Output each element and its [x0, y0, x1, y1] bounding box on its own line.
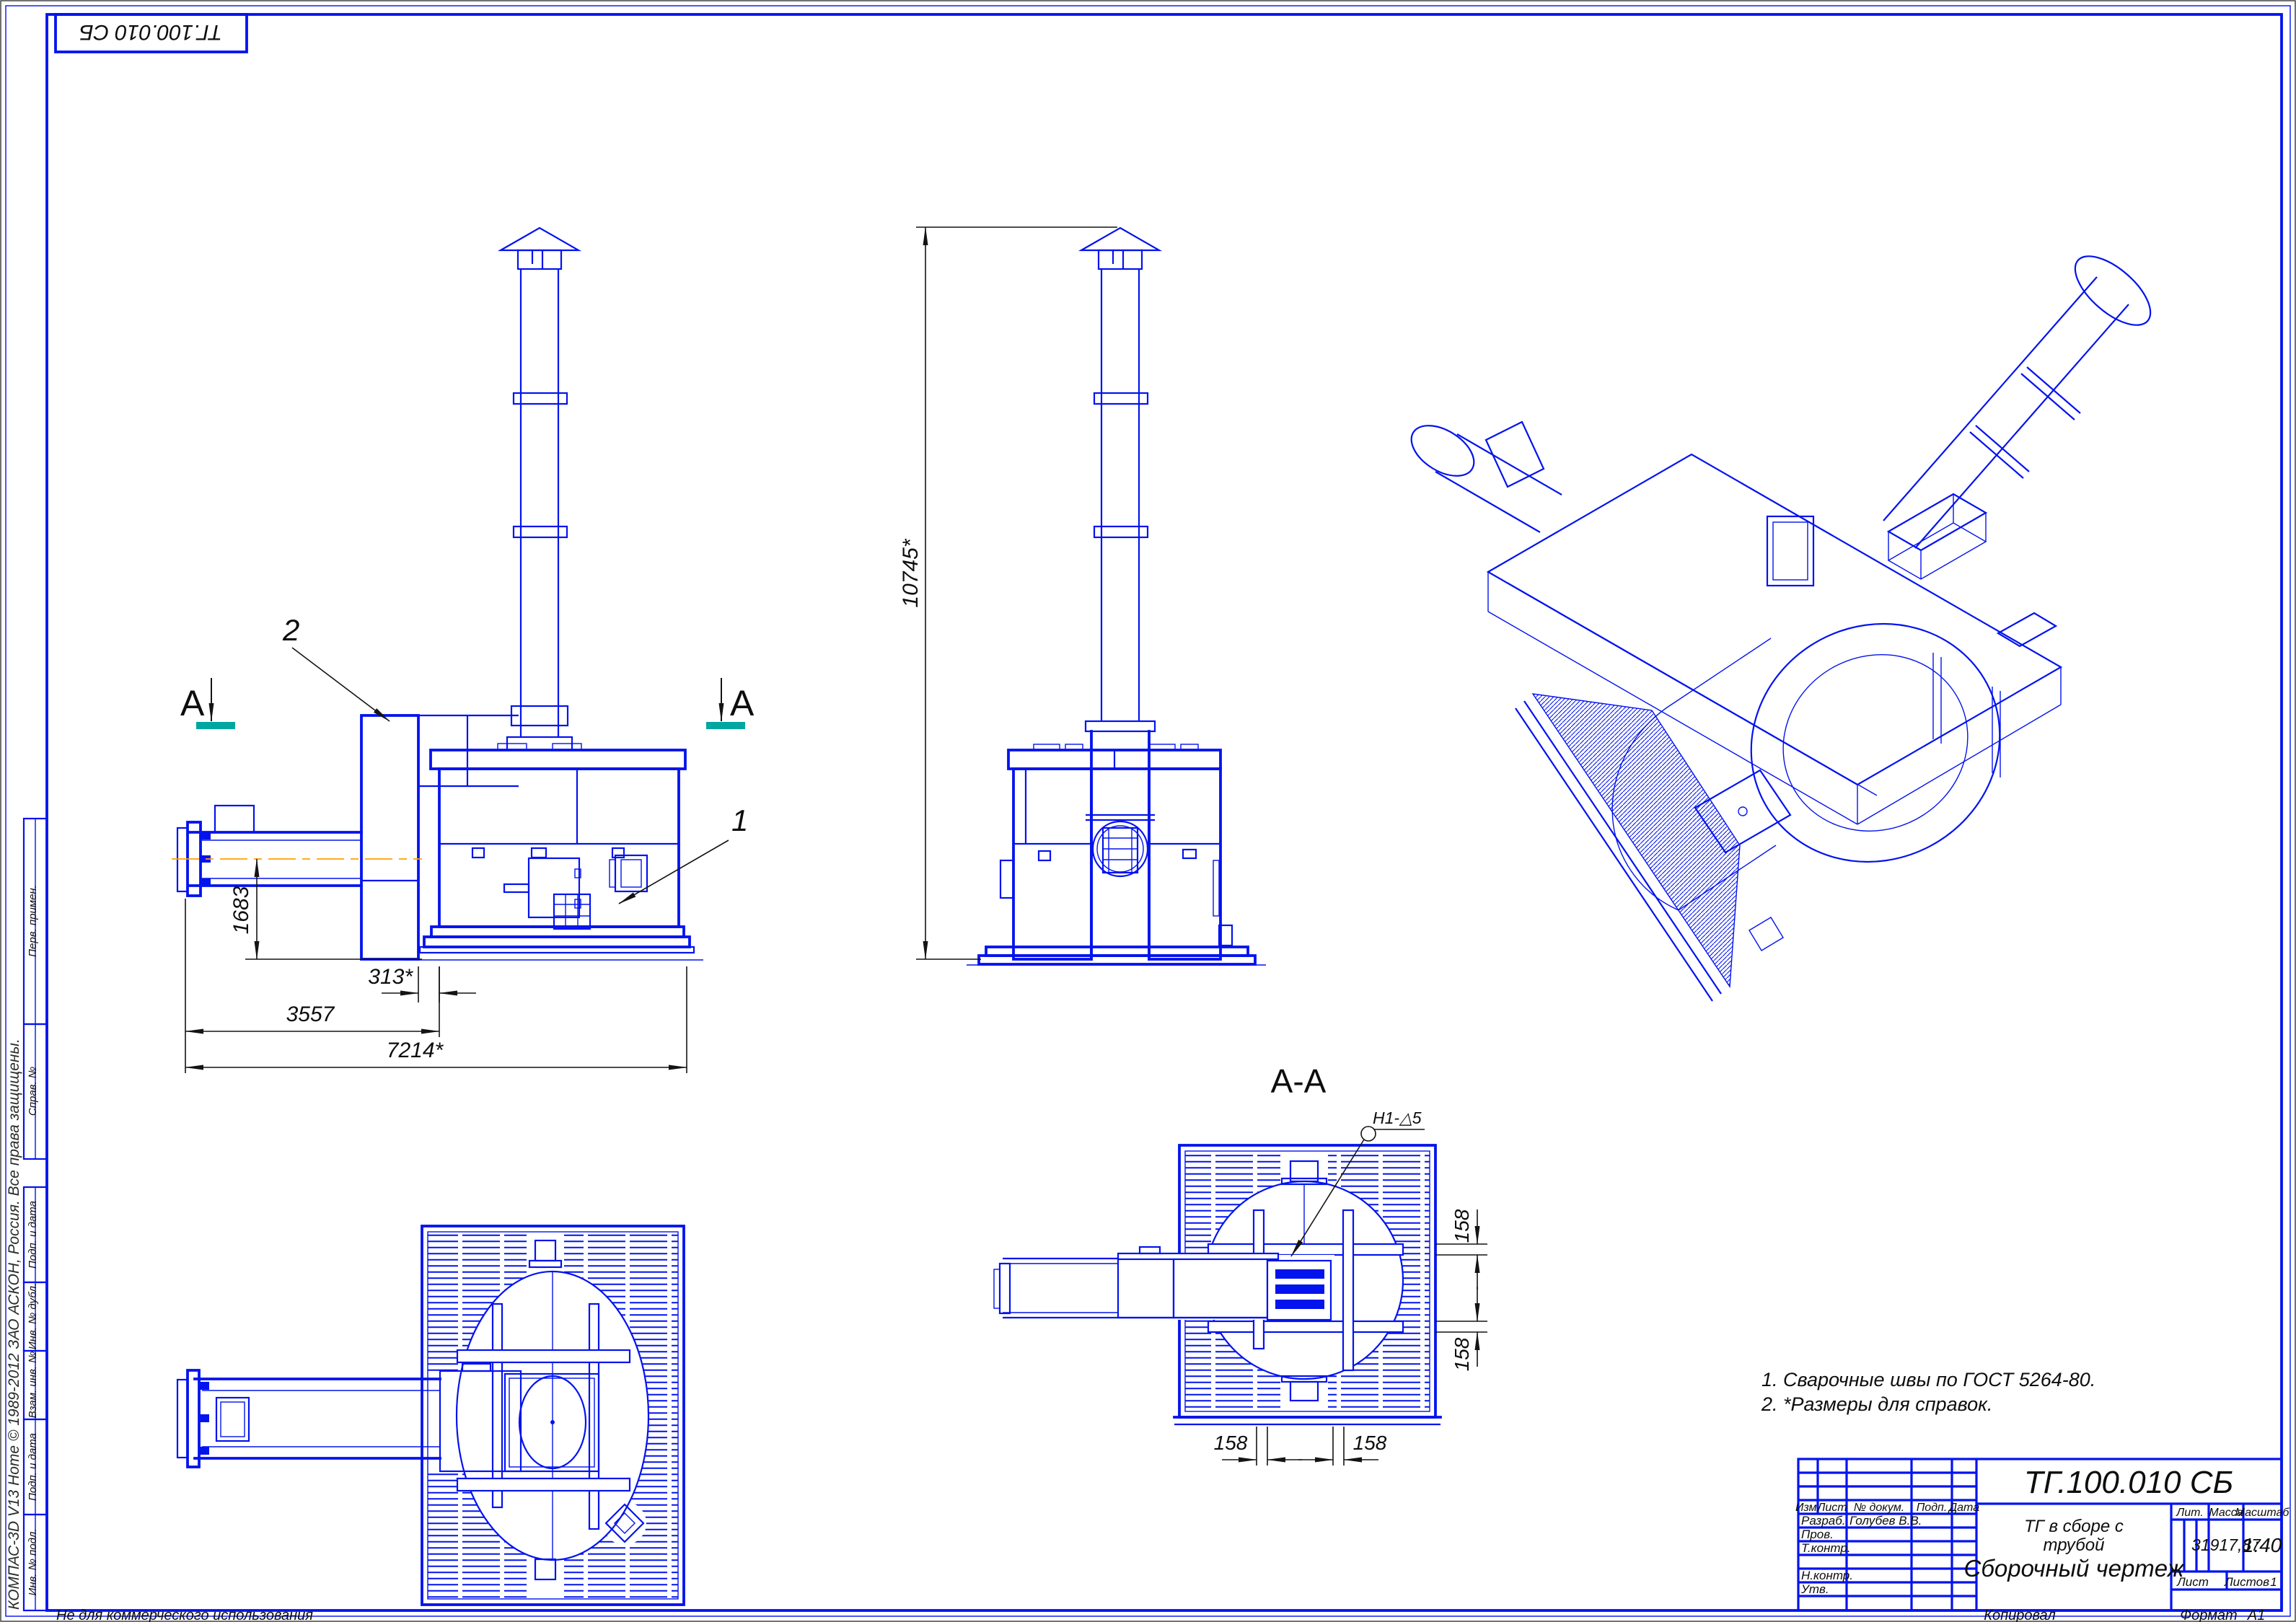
tb-masshtab: Масштаб: [2235, 1507, 2290, 1519]
tb-razrab-name: Голубев В.В.: [1849, 1514, 1922, 1528]
dim-1683: 1683: [229, 886, 253, 934]
footer-note: Не для коммерческого использования: [56, 1608, 313, 1622]
title-block: Изм. Лист № докум. Подп. Дата Разраб. Го…: [1795, 1459, 2290, 1622]
tb-kopiroval: Копировал: [1984, 1608, 2055, 1622]
dim-313: 313*: [368, 965, 413, 989]
dim-158-a: 158: [1451, 1209, 1473, 1243]
tb-masshtab-value: 1:40: [2243, 1534, 2282, 1556]
tb-r-prov: Пров.: [1801, 1528, 1834, 1541]
section-letter-left: А: [180, 683, 205, 723]
dim-158-c: 158: [1214, 1432, 1248, 1454]
tech-notes: 1. Сварочные швы по ГОСТ 5264-80. 2. *Ра…: [1761, 1369, 2095, 1415]
frame-side-columns: Перв. примен. Справ. № Подп. и дата Инв.…: [24, 819, 47, 1610]
section-mark-right: [706, 722, 745, 729]
plan-view: [177, 1226, 684, 1605]
tb-list: Лист: [2176, 1575, 2209, 1589]
note-2: 2. *Размеры для справок.: [1761, 1393, 1992, 1415]
duct-outline: [361, 715, 418, 959]
dim-7214: 7214*: [387, 1039, 444, 1062]
tb-h-podp: Подп.: [1917, 1502, 1948, 1514]
iso-stub-pipe: [1435, 434, 1562, 532]
pos-label-1: 1: [731, 803, 748, 837]
tb-name-l1: ТГ в сборе с: [2024, 1517, 2124, 1536]
stamp-text: ТГ.100.010 СБ: [79, 20, 222, 44]
frame-label-podp-data-1: Подп. и дата: [27, 1201, 39, 1269]
frame-label-vzam-inv: Взам. инв. №: [27, 1352, 39, 1419]
tb-h-list: Лист: [1816, 1502, 1847, 1514]
tb-h-ndoc: № докум.: [1854, 1502, 1904, 1514]
section-mark-left: [196, 722, 235, 729]
tb-designation: ТГ.100.010 СБ: [2024, 1465, 2233, 1500]
tb-name-l2: трубой: [2044, 1535, 2105, 1555]
watermark-text: КОМПАС-3D V13 Home © 1989-2012 ЗАО АСКОН…: [6, 1039, 22, 1610]
pos-label-2: 2: [282, 613, 299, 647]
weld-note: Н1-△5: [1373, 1108, 1422, 1127]
cad-canvas: ТГ.100.010 СБ Перв. примен. Справ. № Под…: [0, 0, 2296, 1622]
tb-lit: Лит.: [2176, 1507, 2203, 1519]
frame-label-podp-data-2: Подп. и дата: [27, 1433, 39, 1501]
section-view: [994, 1145, 1441, 1424]
dim-158-d: 158: [1353, 1432, 1387, 1454]
tb-h-data: Дата: [1948, 1502, 1979, 1514]
frame-label-perv-primen: Перв. примен.: [27, 885, 39, 957]
front-view: [172, 228, 703, 960]
tb-doc-type: Сборочный чертеж: [1964, 1555, 2185, 1582]
tb-r-tkontr: Т.контр.: [1801, 1541, 1851, 1555]
side-view: [967, 228, 1266, 965]
note-1: 1. Сварочные швы по ГОСТ 5264-80.: [1761, 1369, 2095, 1390]
iso-view: [1402, 244, 2162, 1001]
drawing-sheet: ТГ.100.010 СБ Перв. примен. Справ. № Под…: [0, 0, 2296, 1622]
tb-listov: Листов: [2224, 1575, 2269, 1589]
tb-format-value: А1: [2247, 1608, 2265, 1622]
dim-3557: 3557: [286, 1002, 335, 1026]
tb-r-utv: Утв.: [1800, 1582, 1829, 1596]
dim-158-b: 158: [1451, 1337, 1473, 1371]
section-letter-right: А: [730, 683, 755, 723]
frame-label-inv-podl: Инв. № подл.: [27, 1528, 39, 1595]
frame-label-inv-dubl: Инв. № дубл.: [27, 1283, 39, 1349]
dim-10745: 10745*: [899, 538, 923, 607]
tb-listov-value: 1: [2270, 1575, 2277, 1589]
iso-chimney: [1883, 277, 2129, 548]
tb-r-razrab: Разраб.: [1801, 1514, 1846, 1528]
tb-r-nkontr: Н.контр.: [1801, 1569, 1853, 1582]
section-title: А-А: [1271, 1062, 1327, 1100]
tb-format-label: Формат: [2180, 1608, 2237, 1622]
tb-h-izm: Изм.: [1795, 1502, 1820, 1514]
frame-label-sprav-n: Справ. №: [27, 1067, 39, 1116]
